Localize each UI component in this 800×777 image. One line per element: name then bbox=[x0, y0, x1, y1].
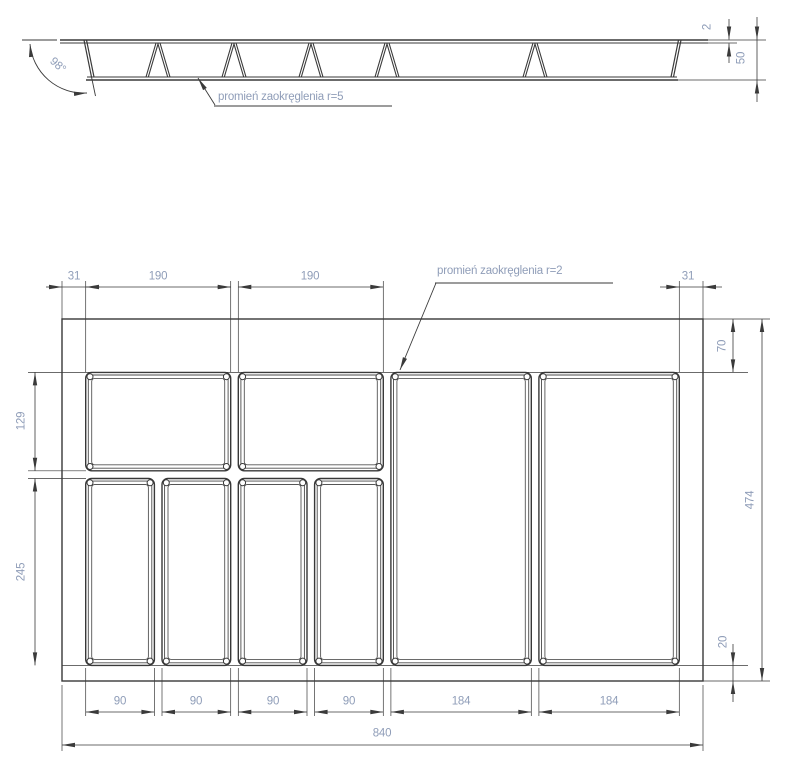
plan-top-compartment-2-label: 190 bbox=[301, 271, 320, 283]
plan-offset-top-label: 70 bbox=[717, 340, 729, 352]
compartment-tall-1 bbox=[391, 372, 531, 665]
plan-large-2-label: 184 bbox=[600, 696, 619, 708]
section-fillet-note: promień zaokręglenia r=5 bbox=[218, 92, 343, 104]
plan-large-1-label: 184 bbox=[452, 696, 471, 708]
divider-1 bbox=[146, 43, 170, 77]
technical-drawing-page: 98° promień zaokręglenia r=5 2 50 31 190… bbox=[0, 0, 800, 777]
compartment-top-1 bbox=[86, 372, 231, 470]
plan-row1-height-label: 129 bbox=[16, 412, 28, 431]
cutlery-tray-drawing bbox=[0, 0, 800, 777]
plan-small-2-label: 90 bbox=[190, 696, 202, 708]
plan-offset-bottom-label: 20 bbox=[718, 636, 730, 648]
compartment-small-3 bbox=[238, 479, 307, 666]
section-view bbox=[22, 17, 766, 106]
compartment-top-2 bbox=[238, 372, 383, 470]
plan-view bbox=[28, 281, 770, 751]
plan-top-compartment-1-label: 190 bbox=[149, 271, 168, 283]
divider-4 bbox=[375, 43, 399, 77]
divider-2 bbox=[222, 43, 246, 77]
divider-5 bbox=[523, 43, 547, 77]
section-height-label: 50 bbox=[736, 52, 748, 64]
plan-row2-height-label: 245 bbox=[16, 563, 28, 582]
compartment-small-1 bbox=[86, 479, 155, 666]
plan-fillet-note: promień zaokręglenia r=2 bbox=[437, 266, 562, 278]
plan-small-1-label: 90 bbox=[114, 696, 126, 708]
plan-margin-left-label: 31 bbox=[68, 271, 80, 283]
plan-small-3-label: 90 bbox=[267, 696, 279, 708]
compartment-small-4 bbox=[315, 479, 384, 666]
plan-small-4-label: 90 bbox=[343, 696, 355, 708]
plan-margin-right-label: 31 bbox=[682, 271, 694, 283]
plan-inner-height-label: 474 bbox=[745, 491, 757, 510]
plan-total-width-label: 840 bbox=[373, 728, 392, 740]
tray-outline bbox=[62, 319, 703, 681]
compartment-small-2 bbox=[162, 479, 231, 666]
divider-3 bbox=[299, 43, 323, 77]
section-rim-thickness-label: 2 bbox=[702, 24, 714, 30]
compartment-tall-2 bbox=[539, 372, 679, 665]
